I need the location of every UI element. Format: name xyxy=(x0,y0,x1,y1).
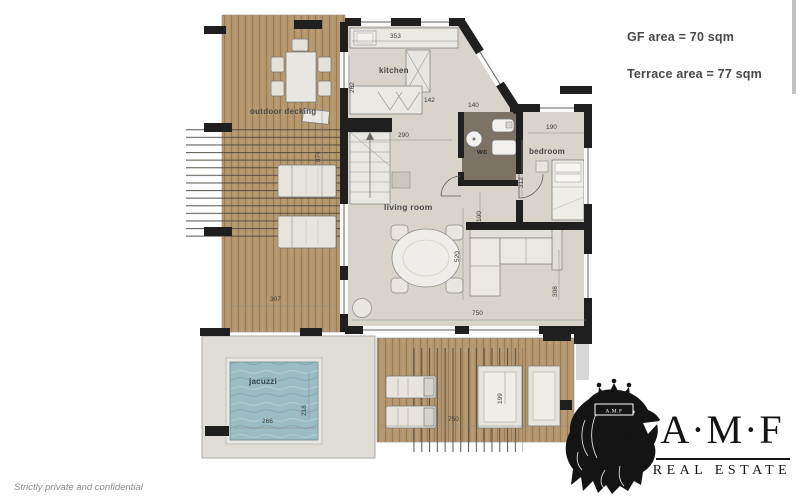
label-wc: wc xyxy=(477,147,488,156)
dim-hall: 100 xyxy=(477,211,484,222)
floorplan-page: A.M.F outdoor decking kitchen living roo… xyxy=(0,0,800,500)
crown-icon: A.M.F xyxy=(595,379,633,415)
jacuzzi-pool xyxy=(230,362,318,440)
dim-kitchen-inner: 142 xyxy=(424,98,435,105)
dim-jacuzzi-width: 266 xyxy=(262,419,273,426)
label-jacuzzi: jacuzzi xyxy=(249,377,277,386)
label-bedroom: bedroom xyxy=(529,147,565,156)
label-living-room: living room xyxy=(384,202,433,212)
dim-living-height: 520 xyxy=(455,251,462,262)
dim-wc-width: 140 xyxy=(468,103,479,110)
jacuzzi-terrace xyxy=(202,336,375,458)
terrace-area-text: Terrace area = 77 sqm xyxy=(627,67,762,81)
dim-living-top: 290 xyxy=(398,133,409,140)
side-table xyxy=(392,172,410,188)
dim-bedroom-width: 190 xyxy=(546,125,557,132)
living-dining-set xyxy=(391,225,463,293)
label-kitchen: kitchen xyxy=(379,66,409,75)
dim-terrace-depth: 199 xyxy=(498,393,505,404)
dim-kitchen-width: 353 xyxy=(390,34,401,41)
label-outdoor-decking: outdoor decking xyxy=(250,107,316,116)
crown-text: A.M.F xyxy=(605,409,622,415)
gf-area-text: GF area = 70 sqm xyxy=(627,30,734,44)
pouf xyxy=(353,299,372,318)
stairs xyxy=(350,132,390,204)
dim-kitchen-depth: 262 xyxy=(350,82,357,93)
dim-bedroom-depth: 312 xyxy=(519,177,526,188)
dim-terrace-width: 750 xyxy=(448,417,459,424)
logo-subtitle: REAL ESTATE xyxy=(648,463,796,479)
dim-sofa-wall: 308 xyxy=(553,286,560,297)
logo-wordmark: A·M·F xyxy=(648,408,796,452)
dim-decking-width: 307 xyxy=(270,297,281,304)
dim-jacuzzi-depth: 218 xyxy=(302,405,309,416)
logo-divider xyxy=(656,458,790,460)
scan-artifact xyxy=(792,0,796,94)
amf-lion-logo: A.M.F xyxy=(566,379,660,494)
dim-decking-height: 874 xyxy=(316,151,323,162)
dim-living-width: 750 xyxy=(472,311,483,318)
wall-shadow xyxy=(576,344,589,380)
confidential-note: Strictly private and confidential xyxy=(14,482,143,493)
